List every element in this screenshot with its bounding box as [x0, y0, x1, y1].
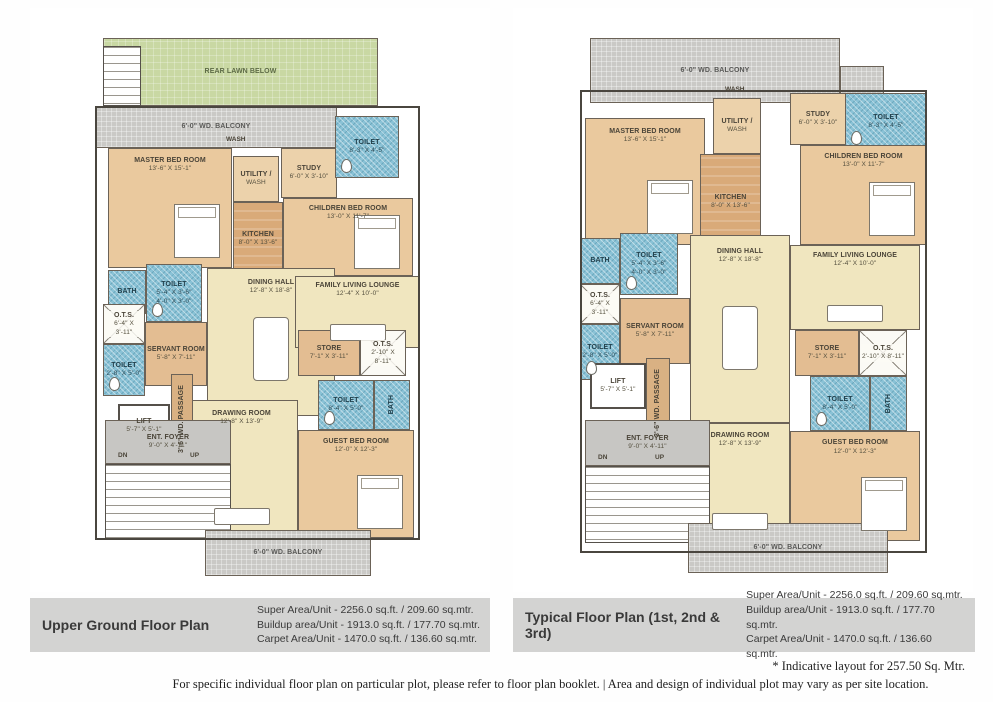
room-label: SERVANT ROOM5'-8" X 7'-11" — [147, 345, 205, 363]
label-dn: DN — [598, 454, 607, 461]
room-label: BATH — [387, 395, 396, 414]
room-label: O.T.S.2'-10" X 8'-11" — [861, 344, 905, 362]
label-dn: DN — [118, 452, 127, 459]
toilet-room: TOILET5'-4" X 3'-6"4'-0" X 3'-0" — [620, 233, 678, 295]
room-label: DINING HALL12'-8" X 18'-8" — [693, 247, 787, 265]
label-wash: WASH — [226, 136, 246, 143]
bed-furniture-icon — [861, 477, 907, 531]
room-label: TOILET2'-8" X 5'-0" — [582, 343, 617, 361]
6-0-wd-balcony-room: 6'-0" WD. BALCONY — [688, 523, 888, 573]
lift-room: LIFT5'-7" X 5'-1" — [590, 363, 646, 409]
room-label: TOILET8'-3" X 4'-5" — [868, 113, 903, 131]
plan-areas-typical: Super Area/Unit - 2256.0 sq.ft. / 209.60… — [746, 588, 965, 661]
room-label: CHILDREN BED ROOM13'-0" X 11'-7" — [804, 152, 924, 170]
room-label: STORE7'-1" X 3'-11" — [808, 344, 846, 362]
buildup-area-line: Buildup area/Unit - 1913.0 sq.ft. / 177.… — [257, 618, 480, 633]
room-label: LIFT5'-7" X 5'-1" — [126, 417, 161, 435]
stair-area — [105, 464, 231, 540]
room-label: 3'-6" WD. PASSAGE — [653, 369, 662, 437]
room-label: MASTER BED ROOM13'-6" X 15'-1" — [588, 127, 701, 145]
o-t-s-room: O.T.S.2'-10" X 8'-11" — [859, 330, 907, 376]
room-label: UTILITY /WASH — [721, 117, 752, 135]
room-label: TOILET5'-4" X 3'-6"4'-0" X 3'-0" — [156, 280, 191, 306]
kitchen-room: KITCHEN8'-0" X 13'-6" — [233, 202, 283, 276]
toilet-room: TOILET8'-4" X 5'-0" — [810, 376, 870, 431]
room-label: KITCHEN8'-0" X 13'-6" — [239, 230, 278, 248]
room-label: REAR LAWN BELOW — [205, 67, 277, 76]
room-label: TOILET5'-4" X 3'-6"4'-0" X 3'-0" — [631, 251, 666, 277]
room-label: STUDY6'-0" X 3'-10" — [290, 164, 329, 182]
table-furniture-icon — [253, 317, 289, 381]
label-up: UP — [190, 452, 199, 459]
bath-room: BATH — [870, 376, 907, 431]
sofa-furniture-icon — [827, 305, 883, 322]
o-t-s-room: O.T.S.6'-4" X 3'-11" — [103, 304, 145, 344]
room-label: UTILITY /WASH — [240, 170, 271, 188]
room-label: GUEST BED ROOM12'-0" X 12'-3" — [794, 438, 917, 456]
floor-plan-page: REAR LAWN BELOW6'-0" WD. BALCONYMASTER B… — [0, 0, 993, 702]
caption-typical: Typical Floor Plan (1st, 2nd & 3rd) Supe… — [513, 598, 975, 652]
room-label: 6'-0" WD. BALCONY — [182, 122, 251, 131]
room-label: TOILET8'-4" X 5'-0" — [328, 396, 363, 414]
room-label: GUEST BED ROOM12'-0" X 12'-3" — [301, 437, 410, 455]
typical-floor-plan-drawing: 6'-0" WD. BALCONYTOILET8'-3" X 4'-5"MAST… — [513, 8, 973, 592]
label-up: UP — [655, 454, 664, 461]
master-bed-room-room: MASTER BED ROOM13'-6" X 15'-1" — [585, 118, 705, 245]
bed-furniture-icon — [869, 182, 915, 236]
room-label: TOILET8'-4" X 5'-0" — [822, 395, 857, 413]
room-label: FAMILY LIVING LOUNGE12'-4" X 10'-0" — [298, 281, 416, 299]
6-0-wd-balcony-room: 6'-0" WD. BALCONY — [95, 106, 337, 148]
room-label: KITCHEN8'-0" X 13'-6" — [711, 193, 750, 211]
room-label: FAMILY LIVING LOUNGE12'-4" X 10'-0" — [794, 251, 917, 269]
bed-furniture-icon — [647, 180, 693, 234]
super-area-line: Super Area/Unit - 2256.0 sq.ft. / 209.60… — [746, 588, 965, 603]
room-label: O.T.S.6'-4" X 3'-11" — [581, 291, 619, 317]
o-t-s-room: O.T.S.6'-4" X 3'-11" — [580, 284, 620, 324]
room-label: BATH — [590, 256, 609, 265]
room-label: CHILDREN BED ROOM13'-0" X 11'-7" — [287, 204, 410, 222]
plan-areas-upper-ground: Super Area/Unit - 2256.0 sq.ft. / 209.60… — [257, 603, 480, 647]
upper-ground-floor-plan-drawing: REAR LAWN BELOW6'-0" WD. BALCONYMASTER B… — [30, 8, 490, 592]
bed-furniture-icon — [357, 475, 403, 529]
room-label: DRAWING ROOM12'-8" X 13'-9" — [693, 431, 787, 449]
footer-disclaimer: For specific individual floor plan on pa… — [110, 677, 991, 692]
toilet-room: TOILET2'-8" X 5'-0" — [103, 344, 145, 396]
toilet-room: TOILET8'-3" X 4'-5" — [335, 116, 399, 178]
room-label: STORE7'-1" X 3'-11" — [310, 344, 348, 362]
bath-room: BATH — [580, 238, 620, 284]
room-label: DRAWING ROOM12'-8" X 13'-9" — [188, 409, 295, 427]
sofa-furniture-icon — [712, 513, 768, 530]
room-label: 6'-0" WD. BALCONY — [681, 66, 750, 75]
bed-furniture-icon — [174, 204, 220, 258]
master-bed-room-room: MASTER BED ROOM13'-6" X 15'-1" — [108, 148, 232, 268]
toilet-room: TOILET5'-4" X 3'-6"4'-0" X 3'-0" — [146, 264, 202, 322]
room-label: O.T.S.6'-4" X 3'-11" — [104, 311, 144, 337]
room-label: TOILET8'-3" X 4'-5" — [349, 138, 384, 156]
study-room: STUDY6'-0" X 3'-10" — [790, 93, 846, 145]
room-label: ENT. FOYER9'-0" X 4'-11" — [147, 433, 189, 451]
room-label: BATH — [884, 394, 893, 413]
utility-room: UTILITY /WASH — [233, 156, 279, 202]
room-label: STUDY6'-0" X 3'-10" — [799, 110, 838, 128]
guest-bed-room-room: GUEST BED ROOM12'-0" X 12'-3" — [298, 430, 414, 538]
bed-furniture-icon — [354, 215, 400, 269]
study-room: STUDY6'-0" X 3'-10" — [281, 148, 337, 198]
super-area-line: Super Area/Unit - 2256.0 sq.ft. / 209.60… — [257, 603, 480, 618]
carpet-area-line: Carpet Area/Unit - 1470.0 sq.ft. / 136.6… — [746, 632, 965, 661]
buildup-area-line: Buildup area/Unit - 1913.0 sq.ft. / 177.… — [746, 603, 965, 632]
room-label: BATH — [117, 287, 136, 296]
label-wash: WASH — [725, 86, 745, 93]
room-label: MASTER BED ROOM13'-6" X 15'-1" — [111, 156, 228, 174]
room-label: LIFT5'-7" X 5'-1" — [600, 377, 635, 395]
plan-title-typical: Typical Floor Plan (1st, 2nd & 3rd) — [525, 609, 746, 641]
plan-title-upper-ground: Upper Ground Floor Plan — [42, 617, 209, 633]
toilet-room: TOILET8'-3" X 4'-5" — [845, 93, 927, 150]
toilet-room: TOILET8'-4" X 5'-0" — [318, 380, 374, 430]
utility-room: UTILITY /WASH — [713, 98, 761, 154]
rear-lawn-below-room: REAR LAWN BELOW — [103, 38, 378, 106]
6-0-wd-balcony-room: 6'-0" WD. BALCONY — [205, 530, 371, 576]
room-label: O.T.S.2'-10" X 8'-11" — [361, 340, 405, 366]
carpet-area-line: Carpet Area/Unit - 1470.0 sq.ft. / 136.6… — [257, 632, 480, 647]
room-label: ENT. FOYER9'-0" X 4'-11" — [626, 434, 668, 452]
stair-area — [103, 46, 141, 106]
sofa-furniture-icon — [330, 324, 386, 341]
indicative-layout-note: * Indicative layout for 257.50 Sq. Mtr. — [772, 659, 965, 674]
table-furniture-icon — [722, 306, 758, 370]
servant-room-room: SERVANT ROOM5'-8" X 7'-11" — [620, 298, 690, 364]
children-bed-room-room: CHILDREN BED ROOM13'-0" X 11'-7" — [283, 198, 413, 276]
dining-hall-room: DINING HALL12'-8" X 18'-8" — [690, 235, 790, 423]
caption-upper-ground: Upper Ground Floor Plan Super Area/Unit … — [30, 598, 490, 652]
store-room: STORE7'-1" X 3'-11" — [795, 330, 859, 376]
sofa-furniture-icon — [214, 508, 270, 525]
room-label: 6'-0" WD. BALCONY — [754, 543, 823, 552]
room-label: SERVANT ROOM5'-8" X 7'-11" — [626, 322, 684, 340]
bath-room: BATH — [374, 380, 410, 430]
family-living-lounge-room: FAMILY LIVING LOUNGE12'-4" X 10'-0" — [790, 245, 920, 330]
children-bed-room-room: CHILDREN BED ROOM13'-0" X 11'-7" — [800, 145, 927, 245]
room-label: 6'-0" WD. BALCONY — [254, 548, 323, 557]
room-label: TOILET2'-8" X 5'-0" — [106, 361, 141, 379]
